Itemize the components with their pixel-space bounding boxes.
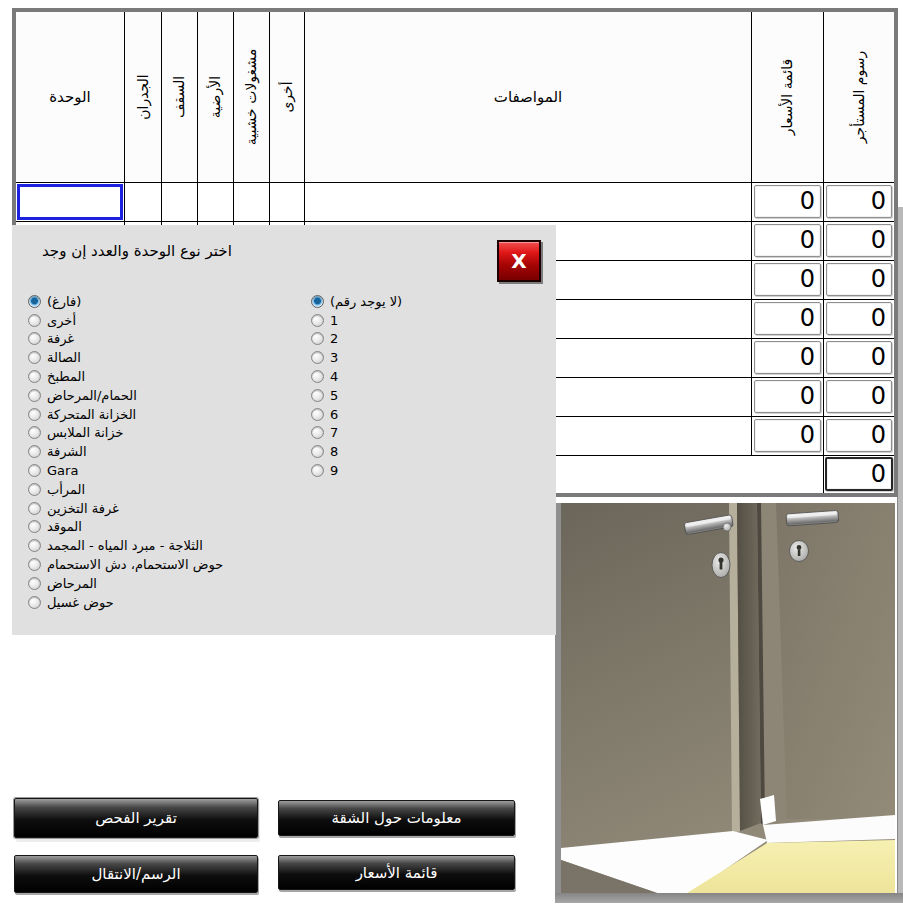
price-list-cell: 0 [751,300,823,338]
radio-option-label: الثلاجة - مبرد المياه - المجمد [47,538,203,553]
unit-type-option-14[interactable]: حوض الاستحمام، دش الاستحمام [28,555,223,574]
radio-option-label: 5 [330,388,338,403]
tenant-fees-cell: 0 [823,183,894,221]
radio-button-icon[interactable] [28,464,41,477]
unit-type-option-11[interactable]: غرفة التخزين [28,499,223,518]
unit-type-option-13[interactable]: الثلاجة - مبرد المياه - المجمد [28,536,223,555]
radio-option-label: الموقد [47,519,82,534]
radio-button-icon[interactable] [28,520,41,533]
unit-type-option-2[interactable]: غرفة [28,330,223,349]
drawing-navigation-button[interactable]: الرسم/الانتقال [14,855,258,893]
unit-type-option-16[interactable]: حوض غسيل [28,593,223,612]
col-header-specifications: المواصفات [304,12,751,182]
unit-number-option-8[interactable]: 8 [311,442,402,461]
radio-button-icon[interactable] [28,502,41,515]
photo-frame-bottom [555,893,903,903]
radio-option-label: حوض الاستحمام، دش الاستحمام [47,557,223,572]
radio-button-icon[interactable] [311,389,324,402]
unit-number-radio-group: (لا يوجد رقم) 1 2 3 4 5 6 7 8 9 [311,292,402,480]
unit-type-option-3[interactable]: الصالة [28,348,223,367]
walls-cell[interactable] [124,183,161,221]
table-header-row: الوحدة الجدران السقف الأرضية مشغولات خشب… [16,12,894,183]
radio-option-label: (لا يوجد رقم) [330,294,402,309]
unit-cell[interactable] [16,183,124,221]
radio-button-icon[interactable] [311,445,324,458]
price-list-input[interactable]: 0 [754,302,821,335]
col-header-woodwork: مشغولات خشبية [233,12,269,182]
radio-option-label: الشرفة [47,444,87,459]
col-header-ceiling: السقف [161,12,197,182]
radio-option-label: الصالة [47,350,81,365]
unit-number-option-0[interactable]: (لا يوجد رقم) [311,292,402,311]
radio-button-icon[interactable] [311,408,324,421]
unit-type-option-9[interactable]: Gara [28,461,223,480]
radio-option-label: Gara [47,463,78,478]
apartment-doors-image [561,503,895,893]
radio-button-icon[interactable] [311,370,324,383]
radio-button-icon[interactable] [28,295,41,308]
unit-type-option-10[interactable]: المرأب [28,480,223,499]
radio-button-icon[interactable] [28,370,41,383]
price-list-cell: 0 [751,417,823,455]
tenant-fees-input[interactable]: 0 [826,224,892,257]
unit-type-option-4[interactable]: المطبخ [28,367,223,386]
price-list-cell: 0 [751,261,823,299]
other-cell[interactable] [269,183,304,221]
unit-number-option-4[interactable]: 4 [311,367,402,386]
tenant-fees-input[interactable]: 0 [826,185,892,218]
radio-option-label: 1 [330,313,338,328]
tenant-fees-input[interactable]: 0 [826,263,892,296]
apartment-info-button[interactable]: معلومات حول الشقة [278,800,515,836]
unit-number-option-2[interactable]: 2 [311,330,402,349]
price-list-input[interactable]: 0 [754,380,821,413]
ceiling-cell[interactable] [161,183,197,221]
radio-button-icon[interactable] [28,577,41,590]
tenant-fees-cell: 0 [823,378,894,416]
radio-option-label: أخرى [47,313,76,328]
radio-button-icon[interactable] [28,332,41,345]
price-list-input[interactable]: 0 [754,263,821,296]
radio-button-icon[interactable] [28,426,41,439]
price-list-cell: 0 [751,339,823,377]
unit-selection-dialog: اختر نوع الوحدة والعدد إن وجد X (فارغ) أ… [12,225,556,635]
radio-option-label: غرفة التخزين [47,501,119,516]
radio-button-icon[interactable] [28,408,41,421]
app-window: الوحدة الجدران السقف الأرضية مشغولات خشب… [0,0,903,907]
radio-option-label: غرفة [47,331,74,346]
col-header-price-list: قائمة الأسعار [751,12,823,182]
price-list-input[interactable]: 0 [754,224,821,257]
radio-option-label: (فارغ) [47,294,81,309]
unit-number-option-1[interactable]: 1 [311,311,402,330]
radio-option-label: المرحاض [47,576,97,591]
price-list-cell: 0 [751,183,823,221]
radio-button-icon[interactable] [28,483,41,496]
col-header-walls: الجدران [124,12,161,182]
radio-button-icon[interactable] [311,295,324,308]
unit-type-option-6[interactable]: الخزانة المتحركة [28,405,223,424]
radio-button-icon[interactable] [28,445,41,458]
price-list-button[interactable]: قائمة الأسعار [278,855,515,890]
tenant-fees-cell: 0 [823,417,894,455]
radio-button-icon[interactable] [28,389,41,402]
radio-option-label: المرأب [47,482,85,497]
col-header-floor: الأرضية [197,12,233,182]
floor-cell[interactable] [197,183,233,221]
col-header-other: أخرى [269,12,304,182]
price-list-cell: 0 [751,378,823,416]
radio-option-label: 8 [330,444,338,459]
unit-type-radio-group: (فارغ) أخرى غرفة الصالة المطبخ الحمام/ال… [28,292,223,612]
col-header-tenant-fees: رسوم المستأجر [823,12,894,182]
total-tenant-fees-value: 0 [825,457,893,491]
inspection-report-button[interactable]: تقرير الفحص [14,798,258,838]
unit-type-option-0[interactable]: (فارغ) [28,292,223,311]
radio-button-icon[interactable] [28,351,41,364]
price-list-input[interactable]: 0 [754,419,821,452]
unit-type-option-8[interactable]: الشرفة [28,442,223,461]
radio-option-label: الحمام/المرحاض [47,388,137,403]
unit-type-option-15[interactable]: المرحاض [28,574,223,593]
total-value-cell: 0 [823,456,894,493]
radio-option-label: 4 [330,369,338,384]
tenant-fees-input[interactable]: 0 [826,419,892,452]
tenant-fees-input[interactable]: 0 [826,302,892,335]
table-row: 0 0 [16,183,894,222]
tenant-fees-input[interactable]: 0 [826,380,892,413]
unit-number-option-9[interactable]: 9 [311,461,402,480]
radio-option-label: حوض غسيل [47,595,114,610]
unit-type-option-7[interactable]: خزانة الملابس [28,424,223,443]
radio-option-label: خزانة الملابس [47,425,124,440]
dialog-title: اختر نوع الوحدة والعدد إن وجد [42,242,232,260]
radio-button-icon[interactable] [311,351,324,364]
tenant-fees-cell: 0 [823,300,894,338]
tenant-fees-cell: 0 [823,339,894,377]
radio-option-label: 9 [330,463,338,478]
unit-type-option-1[interactable]: أخرى [28,311,223,330]
radio-button-icon[interactable] [311,464,324,477]
unit-number-option-7[interactable]: 7 [311,424,402,443]
radio-button-icon[interactable] [28,314,41,327]
price-list-input[interactable]: 0 [754,341,821,374]
close-icon: X [511,251,526,271]
radio-button-icon[interactable] [311,426,324,439]
price-list-cell: 0 [751,222,823,260]
radio-option-label: 3 [330,350,338,365]
unit-number-option-3[interactable]: 3 [311,348,402,367]
unit-type-option-5[interactable]: الحمام/المرحاض [28,386,223,405]
price-list-input[interactable]: 0 [754,185,821,218]
tenant-fees-cell: 0 [823,222,894,260]
radio-button-icon[interactable] [311,314,324,327]
unit-number-option-6[interactable]: 6 [311,405,402,424]
specifications-cell[interactable] [304,183,751,221]
radio-button-icon[interactable] [311,332,324,345]
woodwork-cell[interactable] [233,183,269,221]
tenant-fees-cell: 0 [823,261,894,299]
radio-button-icon[interactable] [28,596,41,609]
radio-option-label: الخزانة المتحركة [47,407,136,422]
radio-option-label: المطبخ [47,369,85,384]
radio-button-icon[interactable] [28,539,41,552]
radio-option-label: 2 [330,331,338,346]
radio-option-label: 6 [330,407,338,422]
tenant-fees-input[interactable]: 0 [826,341,892,374]
radio-button-icon[interactable] [28,558,41,571]
unit-number-option-5[interactable]: 5 [311,386,402,405]
col-header-unit: الوحدة [16,12,124,182]
unit-type-option-12[interactable]: الموقد [28,518,223,537]
radio-option-label: 7 [330,425,338,440]
close-button[interactable]: X [497,240,541,282]
